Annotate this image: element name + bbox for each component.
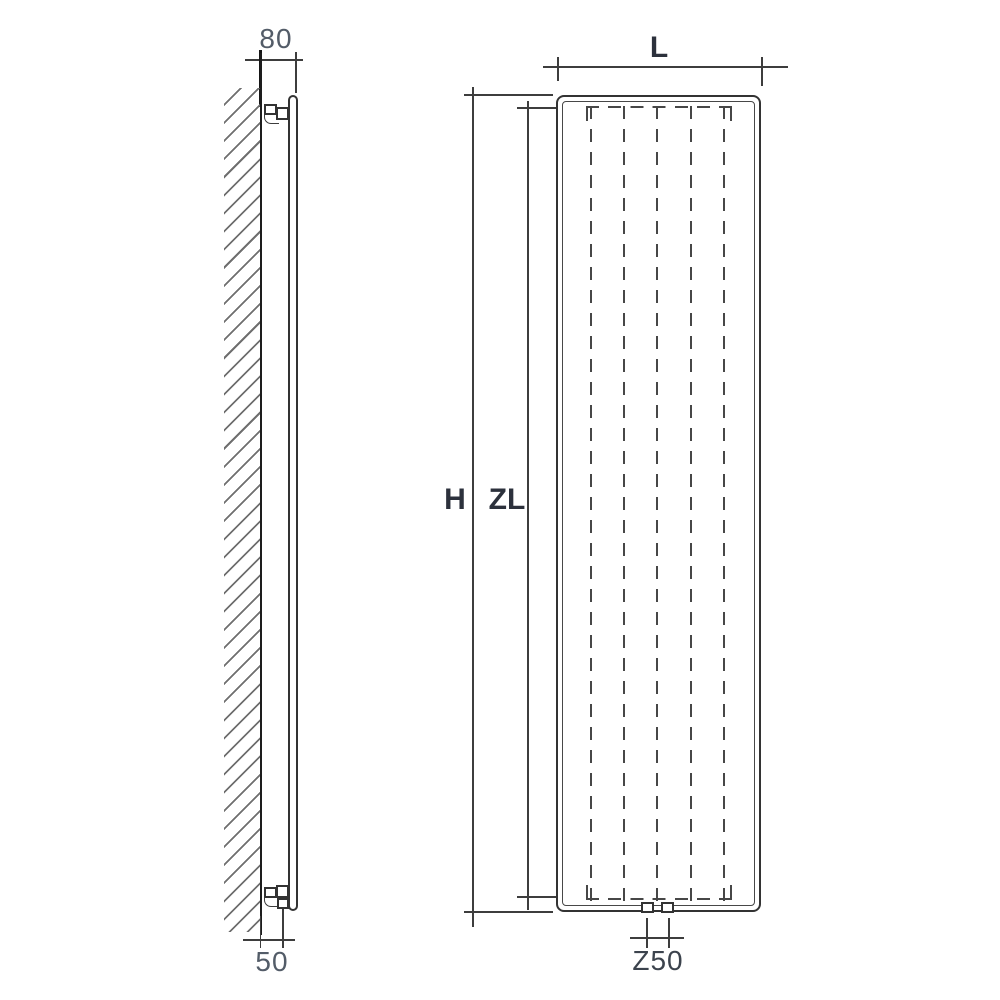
dim-label-50: 50 (239, 948, 305, 976)
element-dashed-channel-1 (590, 106, 592, 901)
dim-line-H (472, 87, 474, 927)
dim-ext-Z50-right (668, 918, 670, 948)
wall-hatch (224, 88, 260, 932)
dim-label-H: H (441, 485, 469, 515)
element-dashed-corner-top-right (730, 106, 732, 121)
dim-line-50 (243, 939, 295, 941)
dim-label-ZL: ZL (487, 485, 527, 515)
element-dashed-channel-2 (623, 106, 625, 901)
dim-ext-50-left (260, 916, 262, 948)
dim-label-80: 80 (243, 25, 309, 53)
element-dashed-corner-bottom-left (586, 885, 588, 900)
dim-ext-L-left (557, 57, 559, 81)
bottom-bracket-arm (276, 885, 289, 898)
dim-label-L: L (629, 33, 689, 63)
bottom-bracket-block (264, 887, 277, 898)
wall-face-line (260, 53, 262, 935)
dim-ext-80-right (295, 52, 297, 93)
element-dashed-channel-3 (656, 106, 658, 901)
dim-ext-L-right (761, 57, 763, 86)
element-dashed-corner-top-left (586, 106, 588, 121)
dim-line-ZL (527, 101, 529, 910)
element-dashed-channel-5 (723, 106, 725, 901)
element-dashed-bottom (586, 898, 733, 900)
dim-line-Z50 (630, 937, 684, 939)
dim-line-L (543, 66, 788, 68)
connection-stub-left (641, 902, 654, 913)
pipe-connection-block (277, 898, 289, 909)
element-dashed-channel-4 (690, 106, 692, 901)
dim-ext-H-top (464, 94, 553, 96)
radiator-side-panel (288, 95, 298, 911)
connection-stub-right (661, 902, 674, 913)
technical-drawing-canvas: 80 50 L H (0, 0, 1000, 1000)
element-dashed-corner-bottom-right (730, 885, 732, 900)
top-bracket-hook (264, 115, 279, 124)
dim-ext-Z50-left (646, 918, 648, 948)
dim-ext-H-bottom (464, 911, 553, 913)
element-dashed-top (586, 106, 733, 108)
pipe-stub-line (282, 909, 284, 948)
dim-label-Z50: Z50 (625, 947, 691, 975)
